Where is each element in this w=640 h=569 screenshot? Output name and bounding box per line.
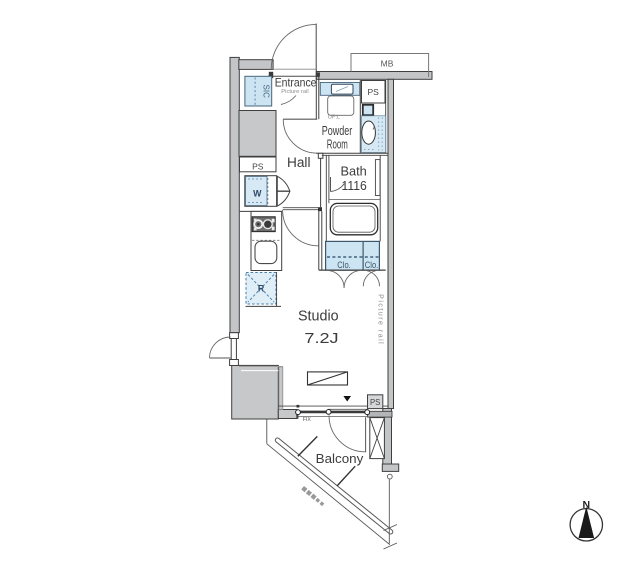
svg-text:Powder: Powder [322, 124, 353, 138]
svg-text:MB: MB [381, 59, 394, 69]
svg-text:W: W [253, 189, 262, 199]
svg-text:Room: Room [327, 138, 348, 152]
svg-text:Bath: Bath [341, 165, 367, 179]
svg-text:Picture rail: Picture rail [377, 294, 384, 345]
svg-text:SIC: SIC [262, 85, 271, 99]
svg-text:1116: 1116 [342, 179, 367, 193]
svg-text:Hall: Hall [287, 155, 311, 170]
svg-text:UF:L: UF:L [328, 115, 341, 121]
svg-text:Clo.: Clo. [365, 260, 379, 271]
svg-text:PS: PS [370, 398, 380, 407]
svg-text:R: R [258, 284, 265, 294]
svg-text:Clo.: Clo. [337, 260, 351, 271]
svg-text:PS: PS [368, 87, 380, 97]
svg-text:PS: PS [252, 162, 264, 172]
svg-text:7.2J: 7.2J [304, 330, 338, 347]
svg-text:Balcony: Balcony [316, 451, 364, 466]
svg-text:FIX: FIX [303, 417, 312, 423]
svg-text:Entrance: Entrance [275, 76, 317, 90]
svg-text:Studio: Studio [298, 309, 339, 325]
svg-text:Picture rail: Picture rail [281, 89, 308, 95]
svg-text:N: N [583, 499, 591, 511]
